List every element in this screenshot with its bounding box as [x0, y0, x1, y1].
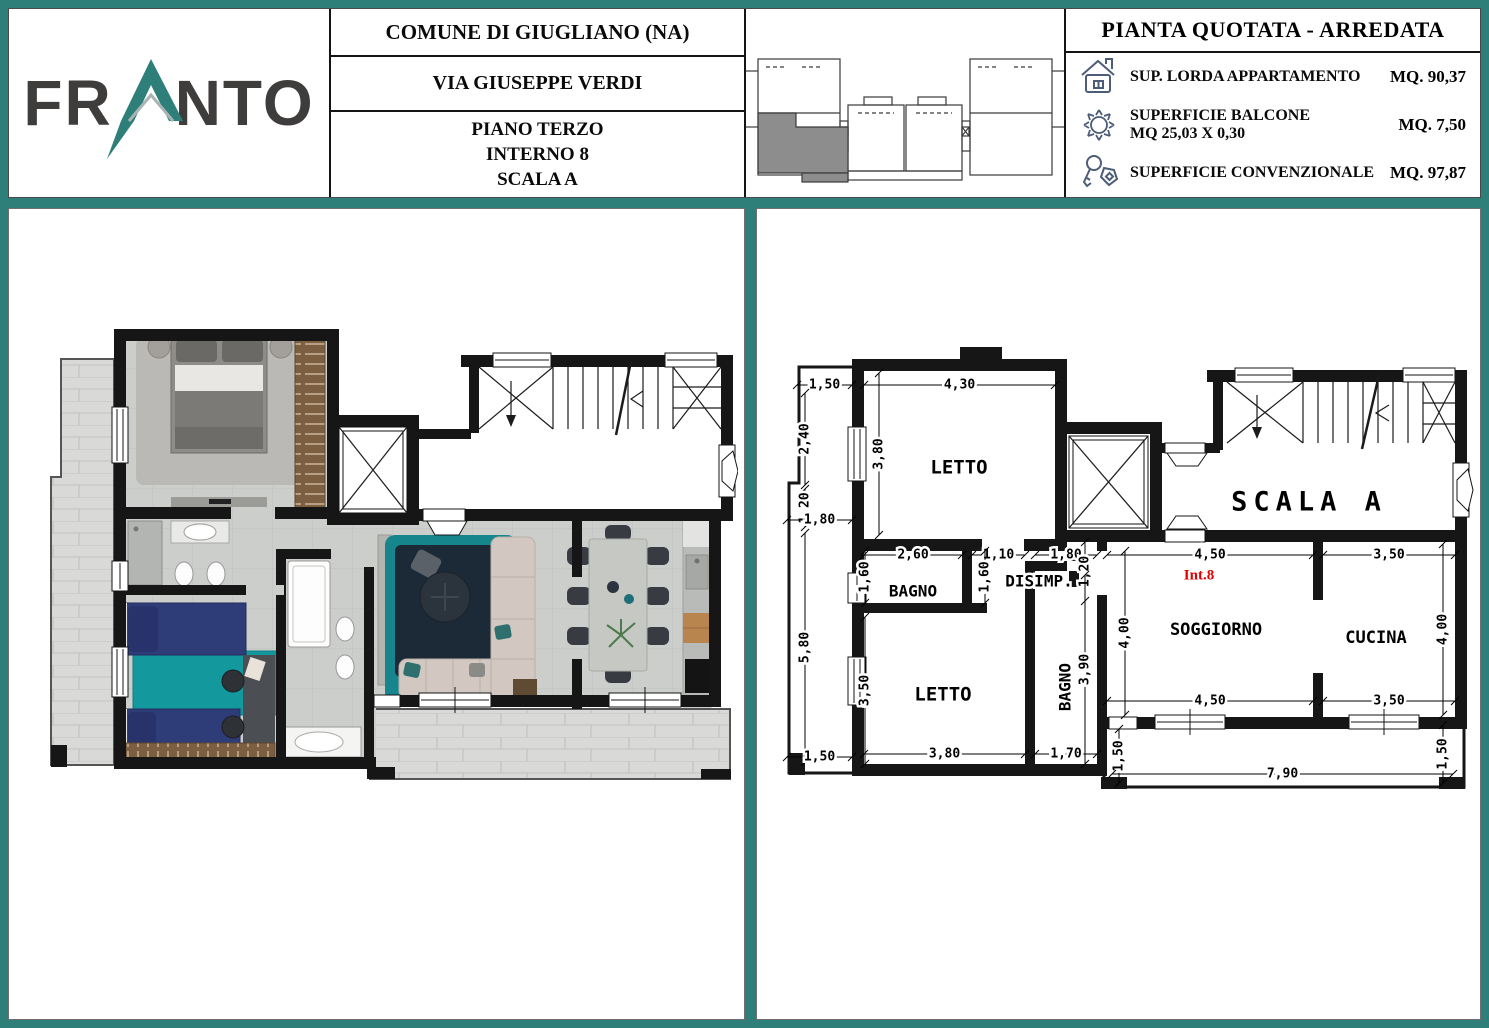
dimension-label: 2,40	[798, 423, 813, 454]
metric-value: MQ. 7,50	[1398, 115, 1466, 135]
company-logo: FR NTO	[9, 9, 329, 197]
logo-mountain-icon	[101, 59, 185, 163]
metric-label: SUPERFICIE CONVENZIONALE	[1130, 164, 1374, 182]
dimension-label: 3,80	[872, 438, 887, 469]
staircase-line: SCALA A	[497, 167, 578, 192]
dimension-label: 4,50	[1194, 548, 1225, 563]
dimension-label: 7,90	[1267, 767, 1298, 782]
left-balcony-wood-floor	[51, 359, 114, 765]
metric-label: SUPERFICIE BALCONE MQ 25,03 X 0,30	[1130, 107, 1310, 143]
house-icon	[1076, 56, 1122, 98]
dimension-label: 1,70	[1050, 747, 1081, 762]
street-label: VIA GIUSEPPE VERDI	[331, 57, 744, 112]
technical-plan-panel: 1,504,302,403,801,201,805,801,502,601,10…	[756, 208, 1481, 1020]
document-page: FR NTO COMUNE DI GIUGLIANO (NA) VIA GIUS…	[0, 0, 1489, 1028]
room-label-bagno-1: BAGNO	[889, 582, 937, 601]
bidet	[207, 562, 225, 586]
shower-tub	[288, 561, 330, 647]
site-plan-thumbnail	[744, 9, 1064, 197]
surface-metrics-panel: PIANTA QUOTATA - ARREDATA SUP. LORDA APP…	[1064, 9, 1480, 197]
floor-line: PIANO TERZO	[471, 117, 603, 142]
dimension-label: 1,50	[1112, 740, 1127, 771]
double-bed	[171, 335, 267, 453]
metric-value: MQ. 97,87	[1390, 163, 1466, 183]
room-label-bagno-2: BAGNO	[1056, 663, 1075, 711]
elevator-shaft	[339, 427, 407, 513]
desk-chair	[222, 670, 244, 692]
toilet	[336, 617, 354, 641]
single-bed-1	[118, 603, 246, 655]
dimension-label: 1,60	[978, 561, 993, 592]
dimension-label: 2,60	[897, 548, 928, 563]
shower	[128, 521, 162, 585]
bottom-balcony-wood-floor	[370, 709, 730, 779]
dimension-label: 1,10	[983, 548, 1014, 563]
furnished-plan-panel	[8, 208, 745, 1020]
kitchen-counter	[683, 521, 711, 707]
dimension-label: 1,50	[804, 750, 835, 765]
dimension-label: 3,50	[1373, 548, 1404, 563]
highlighted-unit	[758, 113, 848, 182]
dimension-label: 4,00	[1118, 617, 1133, 648]
logo-text-right: NTO	[175, 71, 315, 135]
bathtub	[283, 727, 361, 757]
dimension-label: 1,50	[1436, 738, 1451, 769]
unit-number-label: Int.8	[1184, 567, 1214, 583]
title-block: FR NTO COMUNE DI GIUGLIANO (NA) VIA GIUS…	[8, 8, 1481, 198]
address-block: COMUNE DI GIUGLIANO (NA) VIA GIUSEPPE VE…	[329, 9, 744, 197]
room-label-letto-top: LETTO	[930, 457, 987, 479]
room-label-scala-a: SCALA A	[1231, 487, 1387, 518]
keys-icon	[1076, 152, 1122, 194]
dimension-label: 5,80	[798, 632, 813, 663]
toilet	[175, 562, 193, 586]
metric-value: MQ. 90,37	[1390, 67, 1466, 87]
coffee-table	[420, 572, 470, 622]
dimension-label: 4,30	[944, 378, 975, 393]
dimension-label: 4,00	[1436, 614, 1451, 645]
living-room-furniture	[378, 535, 537, 703]
wardrobe	[295, 337, 325, 515]
dimension-label: 3,50	[858, 675, 873, 706]
room-label-soggiorno: SOGGIORNO	[1170, 620, 1262, 640]
dimension-label: 1,50	[809, 378, 840, 393]
logo-text-left: FR	[23, 71, 112, 135]
dimension-label: 4,50	[1194, 694, 1225, 709]
furnished-floor-plan	[33, 329, 738, 799]
metric-row-conventional-surface: SUPERFICIE CONVENZIONALE MQ. 97,87	[1066, 149, 1480, 197]
staircase	[479, 361, 721, 435]
bidet	[336, 655, 354, 679]
metric-row-balcony-surface: SUPERFICIE BALCONE MQ 25,03 X 0,30 MQ. 7…	[1066, 101, 1480, 149]
floor-unit-label: PIANO TERZO INTERNO 8 SCALA A	[331, 112, 744, 197]
elevator-shaft	[1069, 436, 1148, 528]
dimension-label: 1,80	[804, 513, 835, 528]
staircase	[1227, 375, 1455, 449]
cooktop	[685, 659, 709, 693]
desk-chair	[222, 716, 244, 738]
plan-title: PIANTA QUOTATA - ARREDATA	[1066, 9, 1480, 53]
unit-line: INTERNO 8	[486, 142, 589, 167]
dimension-label: 3,50	[1373, 694, 1404, 709]
dimension-label: 3,80	[929, 747, 960, 762]
building-key-plan	[746, 9, 1064, 195]
sun-icon	[1076, 104, 1122, 146]
room-label-cucina: CUCINA	[1345, 628, 1406, 648]
technical-floor-plan: 1,504,302,403,801,201,805,801,502,601,10…	[767, 337, 1477, 807]
room-label-disimp: DISIMP.	[1005, 572, 1072, 591]
room-label-letto-2: LETTO	[914, 684, 971, 706]
ottoman	[513, 679, 537, 697]
municipality-label: COMUNE DI GIUGLIANO (NA)	[331, 9, 744, 57]
metric-row-gross-surface: SUP. LORDA APPARTAMENTO MQ. 90,37	[1066, 53, 1480, 101]
metric-label: SUP. LORDA APPARTAMENTO	[1130, 68, 1360, 86]
dimension-label: 1,60	[858, 561, 873, 592]
dimension-label: 3,90	[1078, 654, 1093, 685]
